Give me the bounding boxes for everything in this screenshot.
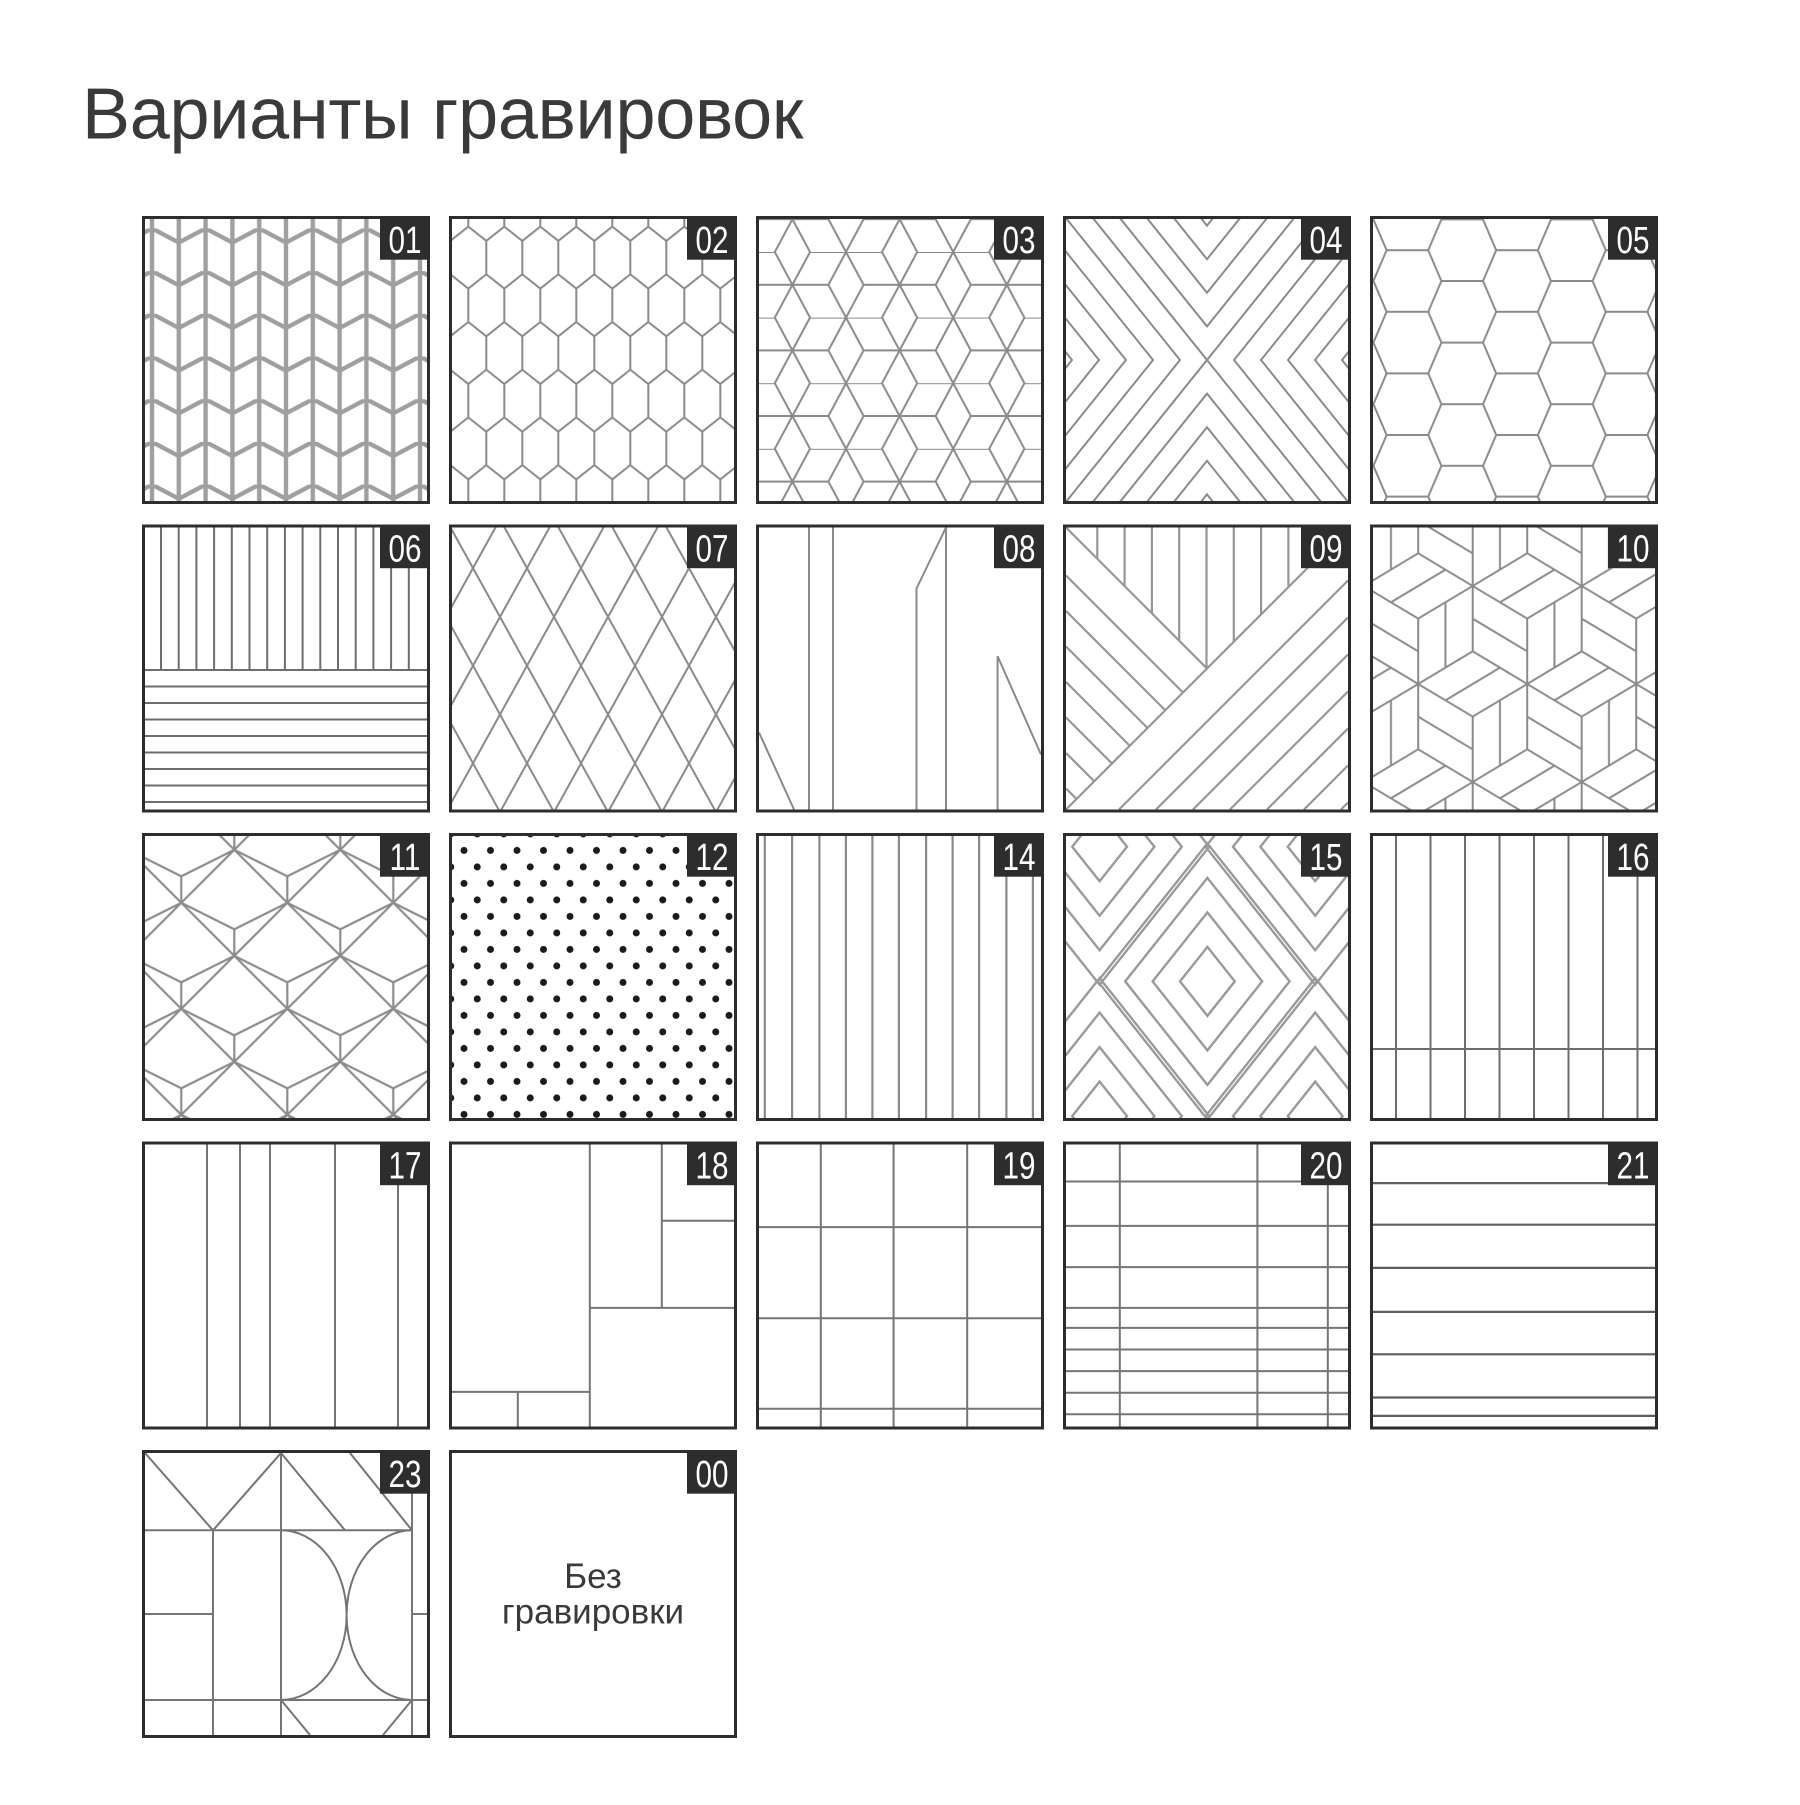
- svg-text:07: 07: [696, 528, 729, 570]
- svg-text:08: 08: [1003, 528, 1036, 570]
- svg-text:02: 02: [696, 220, 729, 262]
- svg-text:03: 03: [1003, 220, 1036, 262]
- svg-text:гравировки: гравировки: [502, 1592, 684, 1631]
- svg-text:Варианты гравировок: Варианты гравировок: [82, 75, 804, 155]
- svg-text:23: 23: [389, 1454, 422, 1496]
- svg-text:05: 05: [1617, 220, 1650, 262]
- svg-text:19: 19: [1003, 1145, 1036, 1187]
- svg-text:21: 21: [1617, 1145, 1650, 1187]
- svg-text:09: 09: [1310, 528, 1343, 570]
- svg-text:16: 16: [1617, 837, 1650, 879]
- svg-text:17: 17: [389, 1145, 422, 1187]
- svg-text:Без: Без: [564, 1557, 622, 1596]
- svg-text:10: 10: [1617, 528, 1650, 570]
- svg-text:01: 01: [389, 220, 422, 262]
- svg-text:11: 11: [390, 837, 421, 879]
- svg-text:20: 20: [1310, 1145, 1343, 1187]
- svg-text:04: 04: [1310, 220, 1343, 262]
- svg-text:15: 15: [1310, 837, 1343, 879]
- svg-text:18: 18: [696, 1145, 729, 1187]
- svg-text:14: 14: [1003, 837, 1036, 879]
- svg-text:06: 06: [389, 528, 422, 570]
- svg-text:00: 00: [696, 1454, 729, 1496]
- svg-text:12: 12: [696, 837, 729, 879]
